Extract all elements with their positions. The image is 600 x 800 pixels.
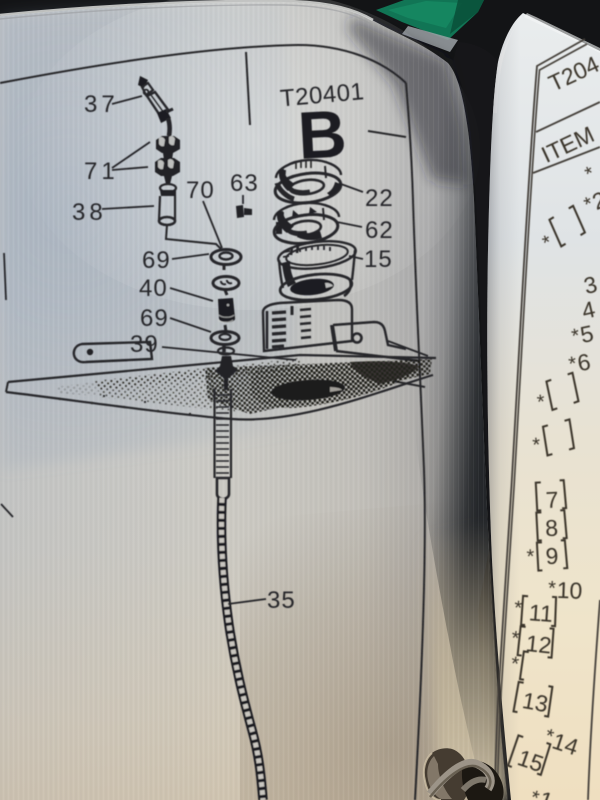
svg-text:B: B bbox=[296, 96, 348, 173]
svg-text:8: 8 bbox=[544, 515, 558, 542]
svg-text:15: 15 bbox=[364, 246, 393, 273]
svg-text:62: 62 bbox=[365, 217, 394, 244]
svg-text:*: * bbox=[526, 546, 535, 568]
svg-text:22: 22 bbox=[365, 185, 394, 212]
svg-text:40: 40 bbox=[139, 275, 168, 302]
svg-text:35: 35 bbox=[267, 587, 296, 614]
svg-text:*10: *10 bbox=[548, 577, 583, 604]
svg-text:13: 13 bbox=[520, 687, 550, 717]
svg-text:71: 71 bbox=[84, 158, 119, 185]
svg-text:11: 11 bbox=[528, 599, 554, 627]
svg-text:70: 70 bbox=[186, 177, 215, 204]
svg-text:63: 63 bbox=[230, 170, 259, 197]
svg-text:39: 39 bbox=[130, 331, 159, 358]
svg-text:12: 12 bbox=[525, 630, 553, 659]
svg-text:7: 7 bbox=[545, 486, 559, 513]
svg-text:69: 69 bbox=[142, 247, 171, 274]
svg-text:38: 38 bbox=[72, 199, 107, 226]
svg-text:69: 69 bbox=[140, 305, 169, 332]
svg-text:9: 9 bbox=[545, 543, 559, 570]
